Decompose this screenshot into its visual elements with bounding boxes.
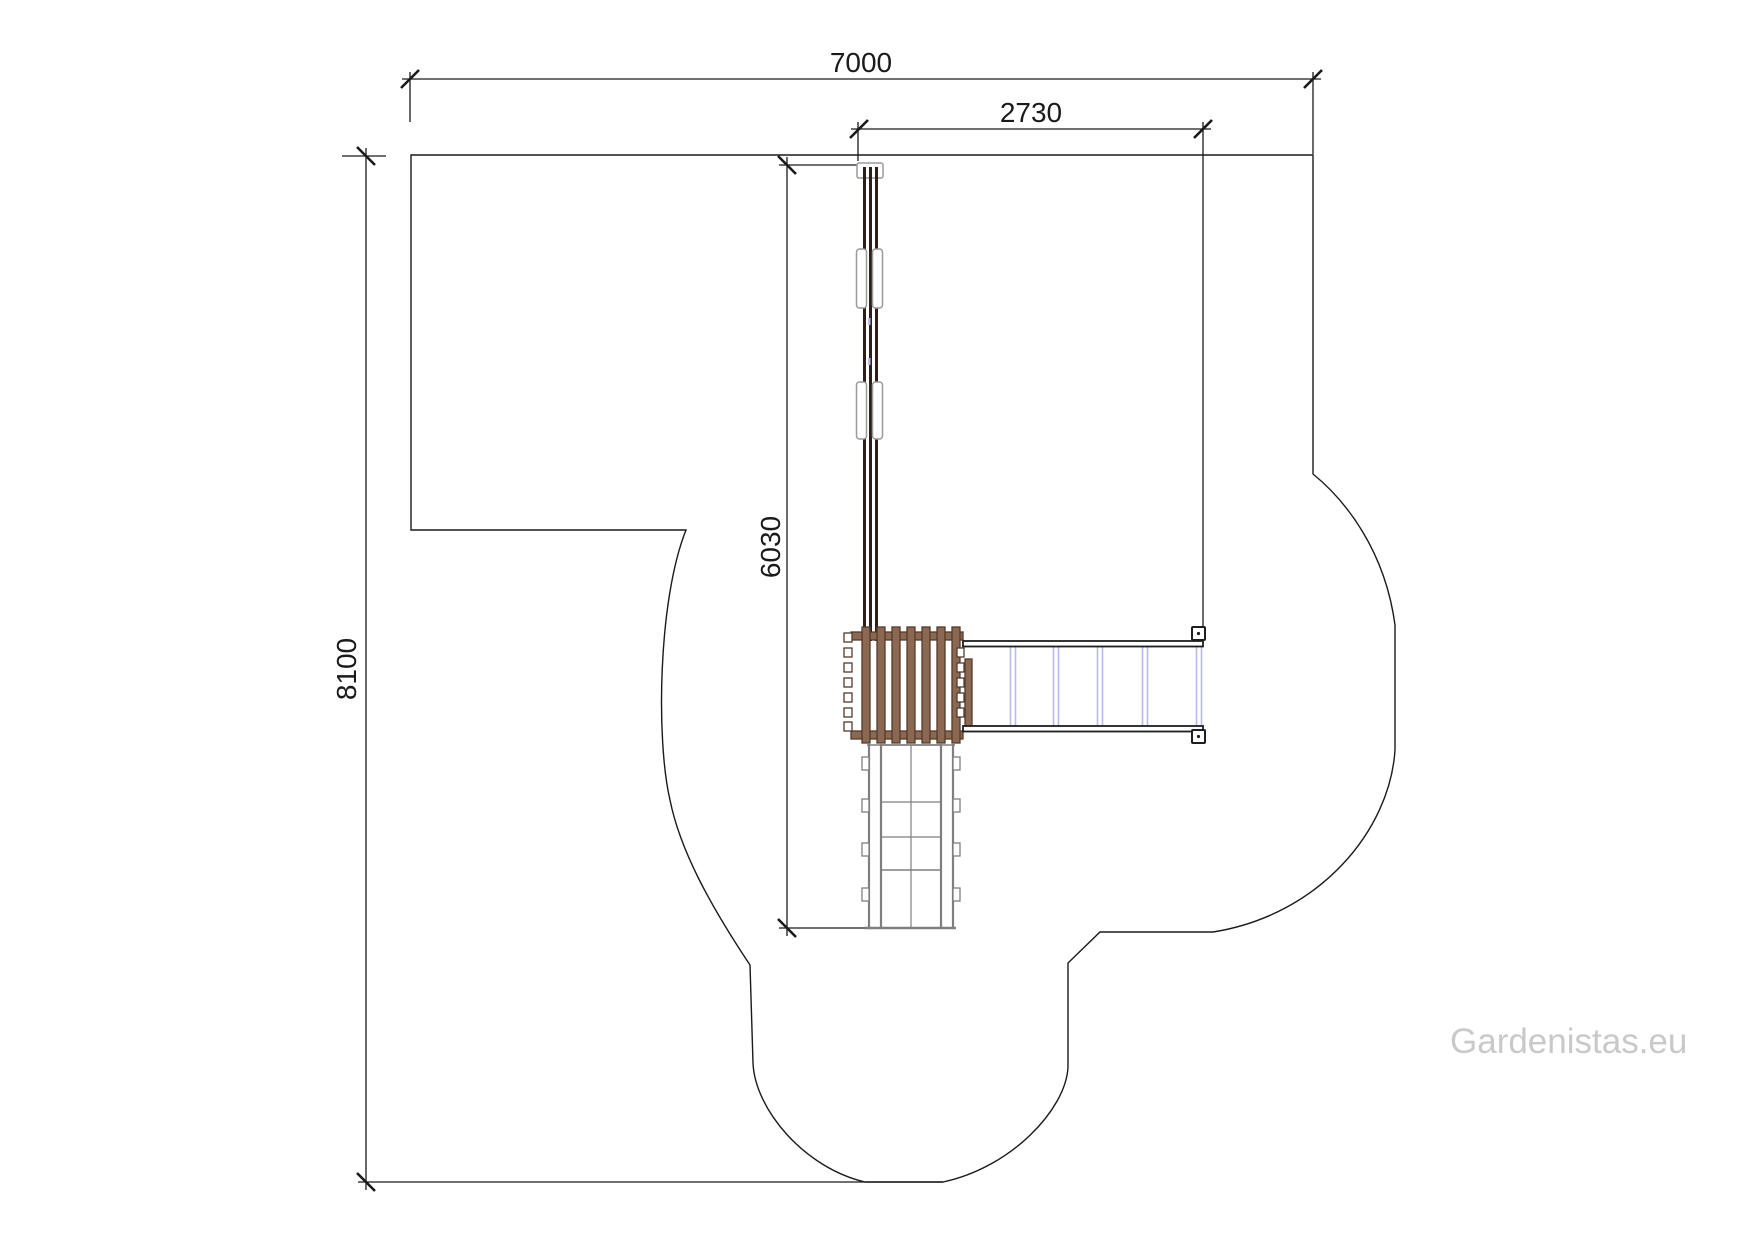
- palisade-step: [844, 678, 852, 687]
- slide-sleeve: [857, 249, 867, 308]
- ladder-side-tab: [862, 843, 869, 856]
- slide: [857, 163, 884, 641]
- palisade-step: [844, 633, 852, 642]
- palisade-step: [957, 693, 964, 702]
- play-area-boundary: [411, 155, 1395, 1182]
- plan-drawing-canvas: 7000 2730 6030 8100: [0, 0, 1754, 1240]
- slide-sleeve: [857, 382, 867, 439]
- palisade-step: [957, 663, 964, 672]
- palisade-slat: [937, 627, 945, 743]
- dimension-total-width: 7000: [401, 47, 1322, 154]
- bracket-bolt: [1197, 735, 1200, 738]
- ladder-side-tab: [862, 757, 869, 770]
- slide-sleeve: [873, 249, 883, 308]
- ladder-side-tab: [862, 888, 869, 901]
- palisade-step: [844, 722, 852, 731]
- dim-label-structure-length: 6030: [755, 516, 786, 578]
- ladder-side-tab: [953, 888, 960, 901]
- tower-ladder: [862, 743, 960, 928]
- ladder-side-tab: [953, 843, 960, 856]
- palisade-slat: [862, 627, 870, 743]
- ladder-side-tab: [953, 799, 960, 812]
- palisade-climbing-wall: [844, 627, 972, 743]
- dim-label-total-height: 8100: [331, 638, 362, 700]
- palisade-slat: [907, 627, 915, 743]
- play-area-outline: [411, 155, 1395, 1182]
- palisade-step: [957, 708, 964, 717]
- watermark: Gardenistas.eu: [1450, 1022, 1687, 1062]
- palisade-end-post: [965, 659, 972, 731]
- palisade-step: [844, 663, 852, 672]
- bridge: [963, 627, 1205, 743]
- palisade-step: [844, 693, 852, 702]
- palisade-slat: [892, 627, 900, 743]
- palisade-step: [844, 648, 852, 657]
- dimension-structure-length: 6030: [755, 156, 866, 937]
- bridge-top-rail: [963, 641, 1203, 647]
- palisade-slat: [922, 627, 930, 743]
- slide-sleeve: [873, 382, 883, 439]
- palisade-slat: [877, 627, 885, 743]
- dimension-upper-width: 2730: [850, 97, 1212, 626]
- ladder-side-tab: [953, 757, 960, 770]
- slide-rail: [869, 167, 872, 641]
- bridge-bottom-rail: [963, 726, 1203, 732]
- dim-label-upper-width: 2730: [1000, 97, 1062, 128]
- dim-label-total-width: 7000: [830, 47, 892, 78]
- ladder-side-tab: [862, 799, 869, 812]
- palisade-step: [957, 648, 964, 657]
- bracket-bolt: [1197, 632, 1200, 635]
- slide-joint-mark: [868, 318, 871, 325]
- palisade-step: [844, 708, 852, 717]
- slide-joint-mark: [868, 358, 871, 365]
- palisade-step: [957, 678, 964, 687]
